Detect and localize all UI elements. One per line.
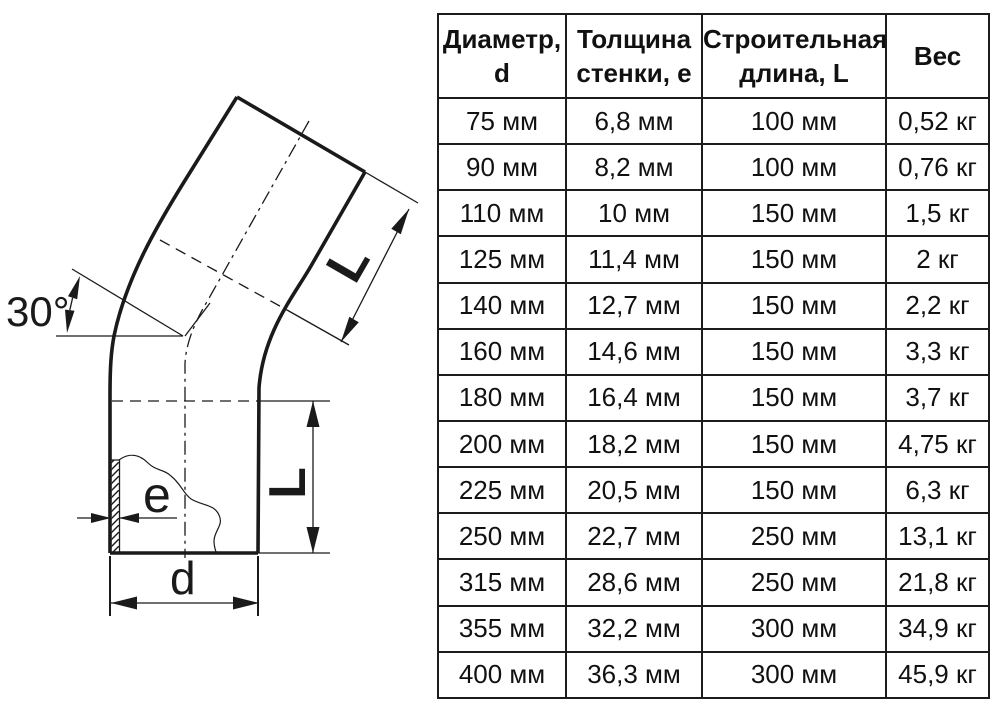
joint-line <box>160 172 418 345</box>
table-cell: 400 мм <box>438 652 566 698</box>
table-cell: 100 мм <box>702 144 886 190</box>
table-cell: 150 мм <box>702 467 886 513</box>
table-cell: 90 мм <box>438 144 566 190</box>
table-cell: 6,8 мм <box>566 98 702 144</box>
table-cell: 3,7 кг <box>886 375 989 421</box>
table-cell: 14,6 мм <box>566 329 702 375</box>
table-row: 90 мм 8,2 мм 100 мм 0,76 кг <box>438 144 989 190</box>
length-label-lower: L <box>259 467 317 499</box>
table-cell: 250 мм <box>438 513 566 559</box>
table-cell: 22,7 мм <box>566 513 702 559</box>
table-cell: 150 мм <box>702 375 886 421</box>
table-cell: 36,3 мм <box>566 652 702 698</box>
table-cell: 2 кг <box>886 236 989 282</box>
column-header-length: Строительная длина, L <box>702 14 886 98</box>
pipe-elbow-spec-sheet: L L 30° e <box>0 0 996 712</box>
arrowhead <box>233 597 259 610</box>
table-cell: 250 мм <box>702 559 886 605</box>
arrowhead <box>307 401 320 427</box>
table-cell: 300 мм <box>702 652 886 698</box>
table-cell: 100 мм <box>702 98 886 144</box>
pipe-top-edge <box>237 97 365 172</box>
column-header-wall-thickness: Толщина стенки, e <box>566 14 702 98</box>
diameter-label: d <box>170 552 196 604</box>
table-cell: 315 мм <box>438 559 566 605</box>
diameter-dimension: d <box>110 552 259 616</box>
table-cell: 32,2 мм <box>566 606 702 652</box>
table-cell: 125 мм <box>438 236 566 282</box>
table-cell: 13,1 кг <box>886 513 989 559</box>
spec-table: Диаметр, d Толщина стенки, e Строительна… <box>437 13 990 699</box>
table-cell: 45,9 кг <box>886 652 989 698</box>
table-cell: 160 мм <box>438 329 566 375</box>
table-cell: 8,2 мм <box>566 144 702 190</box>
table-cell: 355 мм <box>438 606 566 652</box>
table-row: 180 мм 16,4 мм 150 мм 3,7 кг <box>438 375 989 421</box>
table-row: 225 мм 20,5 мм 150 мм 6,3 кг <box>438 467 989 513</box>
header-row: Диаметр, d Толщина стенки, e Строительна… <box>438 14 989 98</box>
angle-dimension: 30° <box>6 269 183 336</box>
table-cell: 10 мм <box>566 190 702 236</box>
table-cell: 18,2 мм <box>566 421 702 467</box>
table-row: 250 мм 22,7 мм 250 мм 13,1 кг <box>438 513 989 559</box>
table-cell: 12,7 мм <box>566 283 702 329</box>
table-cell: 21,8 кг <box>886 559 989 605</box>
arrowhead <box>91 513 111 523</box>
table-row: 400 мм 36,3 мм 300 мм 45,9 кг <box>438 652 989 698</box>
table-row: 125 мм 11,4 мм 150 мм 2 кг <box>438 236 989 282</box>
table-cell: 180 мм <box>438 375 566 421</box>
table-cell: 150 мм <box>702 283 886 329</box>
wall-dimension: e <box>77 467 177 523</box>
table-cell: 75 мм <box>438 98 566 144</box>
table-cell: 6,3 кг <box>886 467 989 513</box>
table-cell: 150 мм <box>702 329 886 375</box>
table-cell: 300 мм <box>702 606 886 652</box>
column-header-diameter: Диаметр, d <box>438 14 566 98</box>
table-cell: 225 мм <box>438 467 566 513</box>
arrowhead <box>119 513 139 523</box>
table-row: 200 мм 18,2 мм 150 мм 4,75 кг <box>438 421 989 467</box>
pipe-left-edge <box>110 97 237 553</box>
table-cell: 28,6 мм <box>566 559 702 605</box>
table-row: 160 мм 14,6 мм 150 мм 3,3 кг <box>438 329 989 375</box>
table-cell: 20,5 мм <box>566 467 702 513</box>
table-cell: 16,4 мм <box>566 375 702 421</box>
arrowhead <box>68 276 80 299</box>
wall-thickness-label: e <box>143 467 171 523</box>
pipe-elbow-diagram: L L 30° e <box>0 0 435 712</box>
arrowhead <box>307 527 320 553</box>
table-cell: 250 мм <box>702 513 886 559</box>
table-cell: 0,52 кг <box>886 98 989 144</box>
table-cell: 3,3 кг <box>886 329 989 375</box>
table-row: 75 мм 6,8 мм 100 мм 0,52 кг <box>438 98 989 144</box>
table-cell: 4,75 кг <box>886 421 989 467</box>
table-cell: 1,5 кг <box>886 190 989 236</box>
arrowhead <box>391 209 409 234</box>
table-row: 355 мм 32,2 мм 300 мм 34,9 кг <box>438 606 989 652</box>
table-cell: 150 мм <box>702 190 886 236</box>
table-cell: 34,9 кг <box>886 606 989 652</box>
table-cell: 110 мм <box>438 190 566 236</box>
table-cell: 11,4 мм <box>566 236 702 282</box>
length-dimension-upper: L <box>315 209 409 342</box>
table-cell: 150 мм <box>702 421 886 467</box>
table-cell: 150 мм <box>702 236 886 282</box>
table-cell: 2,2 кг <box>886 283 989 329</box>
table-row: 110 мм 10 мм 150 мм 1,5 кг <box>438 190 989 236</box>
arrowhead <box>341 317 359 342</box>
table-cell: 200 мм <box>438 421 566 467</box>
table-row: 315 мм 28,6 мм 250 мм 21,8 кг <box>438 559 989 605</box>
column-header-weight: Вес <box>886 14 989 98</box>
angle-label: 30° <box>6 288 70 335</box>
arrowhead <box>111 597 137 610</box>
table-cell: 140 мм <box>438 283 566 329</box>
table-row: 140 мм 12,7 мм 150 мм 2,2 кг <box>438 283 989 329</box>
table-cell: 0,76 кг <box>886 144 989 190</box>
